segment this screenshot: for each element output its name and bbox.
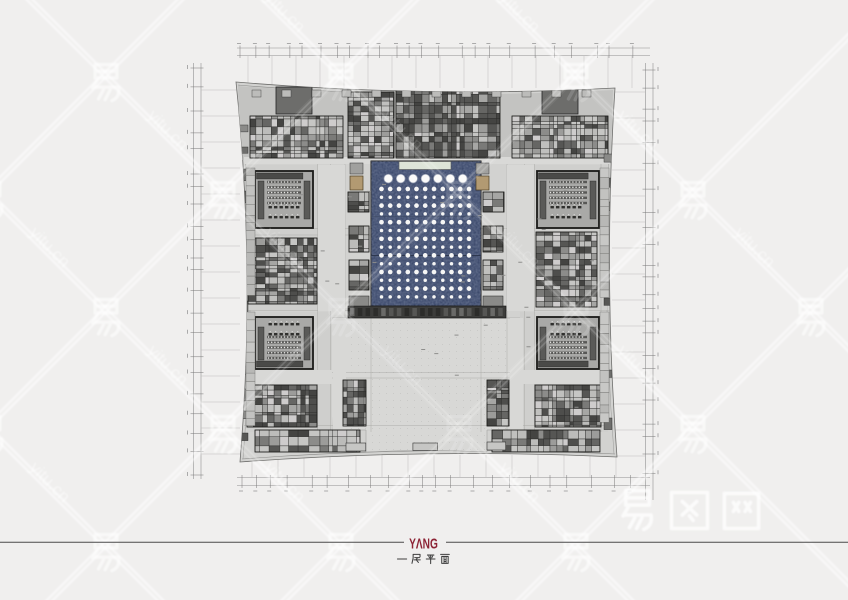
svg-text:YΛNG: YΛNG bbox=[409, 536, 438, 552]
